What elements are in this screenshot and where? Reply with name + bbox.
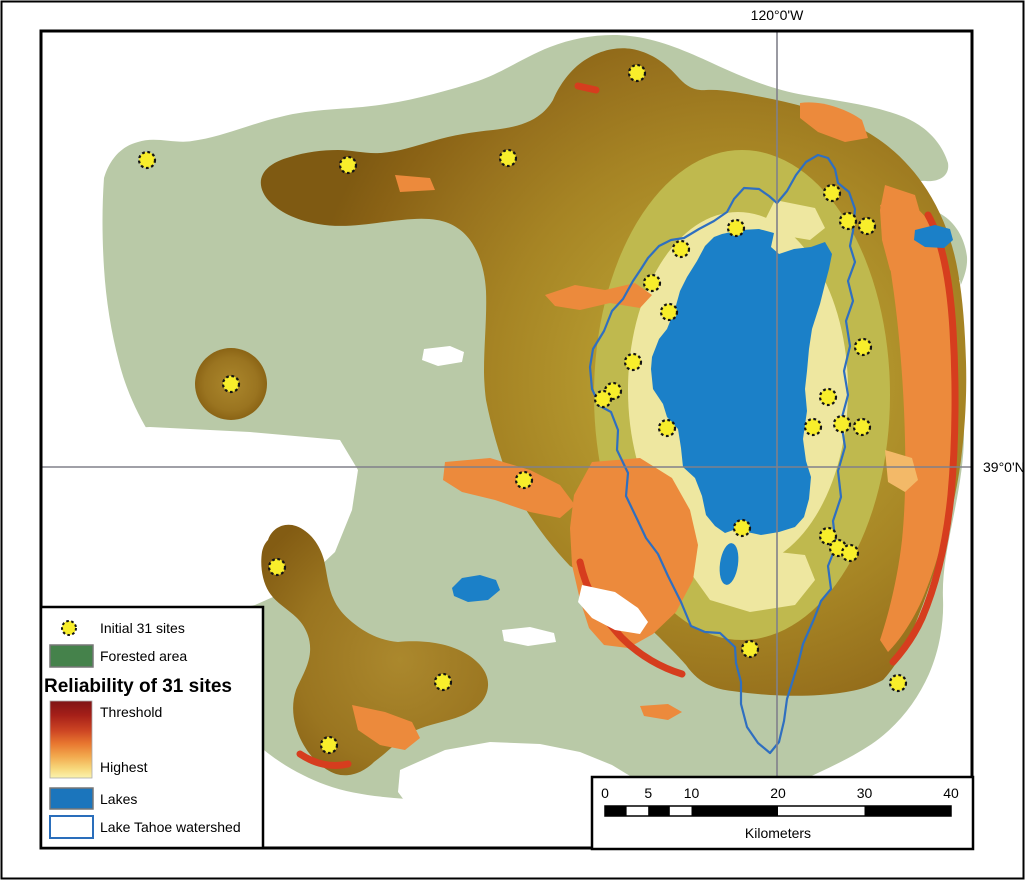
site-marker[interactable] — [854, 419, 870, 435]
site-marker[interactable] — [595, 391, 611, 407]
latitude-label: 39°0'N — [983, 459, 1025, 475]
site-marker[interactable] — [516, 472, 532, 488]
scalebar-tick-label: 5 — [644, 785, 652, 801]
site-marker[interactable] — [673, 241, 689, 257]
site-marker[interactable] — [855, 339, 871, 355]
site-marker[interactable] — [742, 641, 758, 657]
map-document: 120°0'W 39°0'N Initial 31 sites Forested… — [0, 0, 1026, 881]
site-marker[interactable] — [435, 674, 451, 690]
scalebar-bar-segments — [605, 806, 951, 816]
legend-lakes-label: Lakes — [100, 791, 137, 807]
legend-threshold-label: Threshold — [100, 704, 162, 720]
site-marker[interactable] — [223, 376, 239, 392]
site-marker[interactable] — [890, 675, 906, 691]
legend-highest-label: Highest — [100, 759, 148, 775]
longitude-label: 120°0'W — [751, 7, 804, 23]
scalebar-tick-label: 0 — [601, 785, 609, 801]
site-marker[interactable] — [321, 737, 337, 753]
scalebar: 0510203040 Kilometers — [592, 777, 973, 849]
site-marker[interactable] — [824, 185, 840, 201]
site-marker[interactable] — [500, 150, 516, 166]
site-marker[interactable] — [659, 420, 675, 436]
site-marker[interactable] — [728, 220, 744, 236]
site-marker[interactable] — [734, 520, 750, 536]
legend-title: Reliability of 31 sites — [44, 676, 232, 697]
legend-reliability-ramp — [50, 701, 92, 778]
scalebar-unit-label: Kilometers — [745, 825, 811, 841]
legend-site-symbol — [62, 621, 76, 635]
site-marker[interactable] — [139, 152, 155, 168]
site-marker[interactable] — [340, 157, 356, 173]
site-marker[interactable] — [842, 545, 858, 561]
legend-watershed-label: Lake Tahoe watershed — [100, 819, 241, 835]
site-marker[interactable] — [820, 389, 836, 405]
scalebar-tick-label: 10 — [684, 785, 700, 801]
legend: Initial 31 sites Forested area Reliabili… — [41, 607, 263, 848]
legend-lakes-swatch — [50, 788, 93, 809]
site-marker[interactable] — [644, 275, 660, 291]
site-marker[interactable] — [805, 419, 821, 435]
scalebar-tick-label: 40 — [943, 785, 959, 801]
scalebar-tick-label: 30 — [857, 785, 873, 801]
site-marker[interactable] — [840, 213, 856, 229]
site-marker[interactable] — [859, 218, 875, 234]
site-marker[interactable] — [661, 304, 677, 320]
site-marker[interactable] — [269, 559, 285, 575]
site-marker[interactable] — [834, 416, 850, 432]
legend-forested-label: Forested area — [100, 648, 187, 664]
legend-forested-swatch — [50, 645, 93, 667]
scalebar-tick-label: 20 — [770, 785, 786, 801]
legend-watershed-swatch — [50, 816, 93, 838]
map-canvas: 120°0'W 39°0'N Initial 31 sites Forested… — [0, 0, 1026, 881]
site-marker[interactable] — [625, 354, 641, 370]
site-marker[interactable] — [629, 65, 645, 81]
legend-initial-sites-label: Initial 31 sites — [100, 620, 185, 636]
